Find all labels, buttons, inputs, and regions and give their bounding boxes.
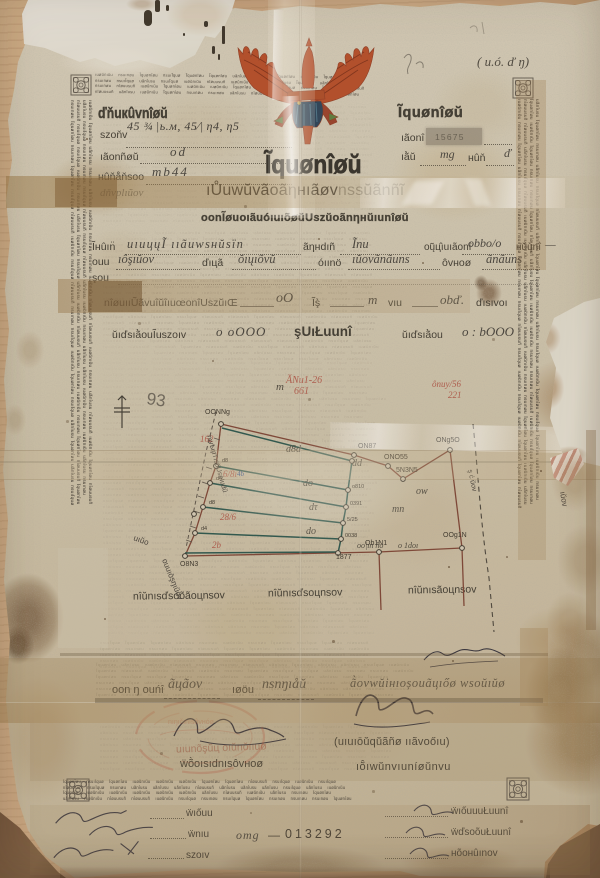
svg-text:93: 93	[145, 389, 166, 410]
svg-text:ĂNu1-26: ĂNu1-26	[285, 374, 322, 386]
svg-text:OONNg: OONNg	[205, 409, 230, 416]
svg-text:O8N3: O8N3	[180, 561, 198, 568]
svg-text:m: m	[276, 381, 284, 393]
svg-text:ônuy/56: ônuy/56	[432, 379, 461, 389]
svg-text:221: 221	[448, 390, 462, 400]
svg-text:uıŭo: uıŭo	[132, 533, 150, 547]
svg-text:1877: 1877	[336, 554, 352, 561]
